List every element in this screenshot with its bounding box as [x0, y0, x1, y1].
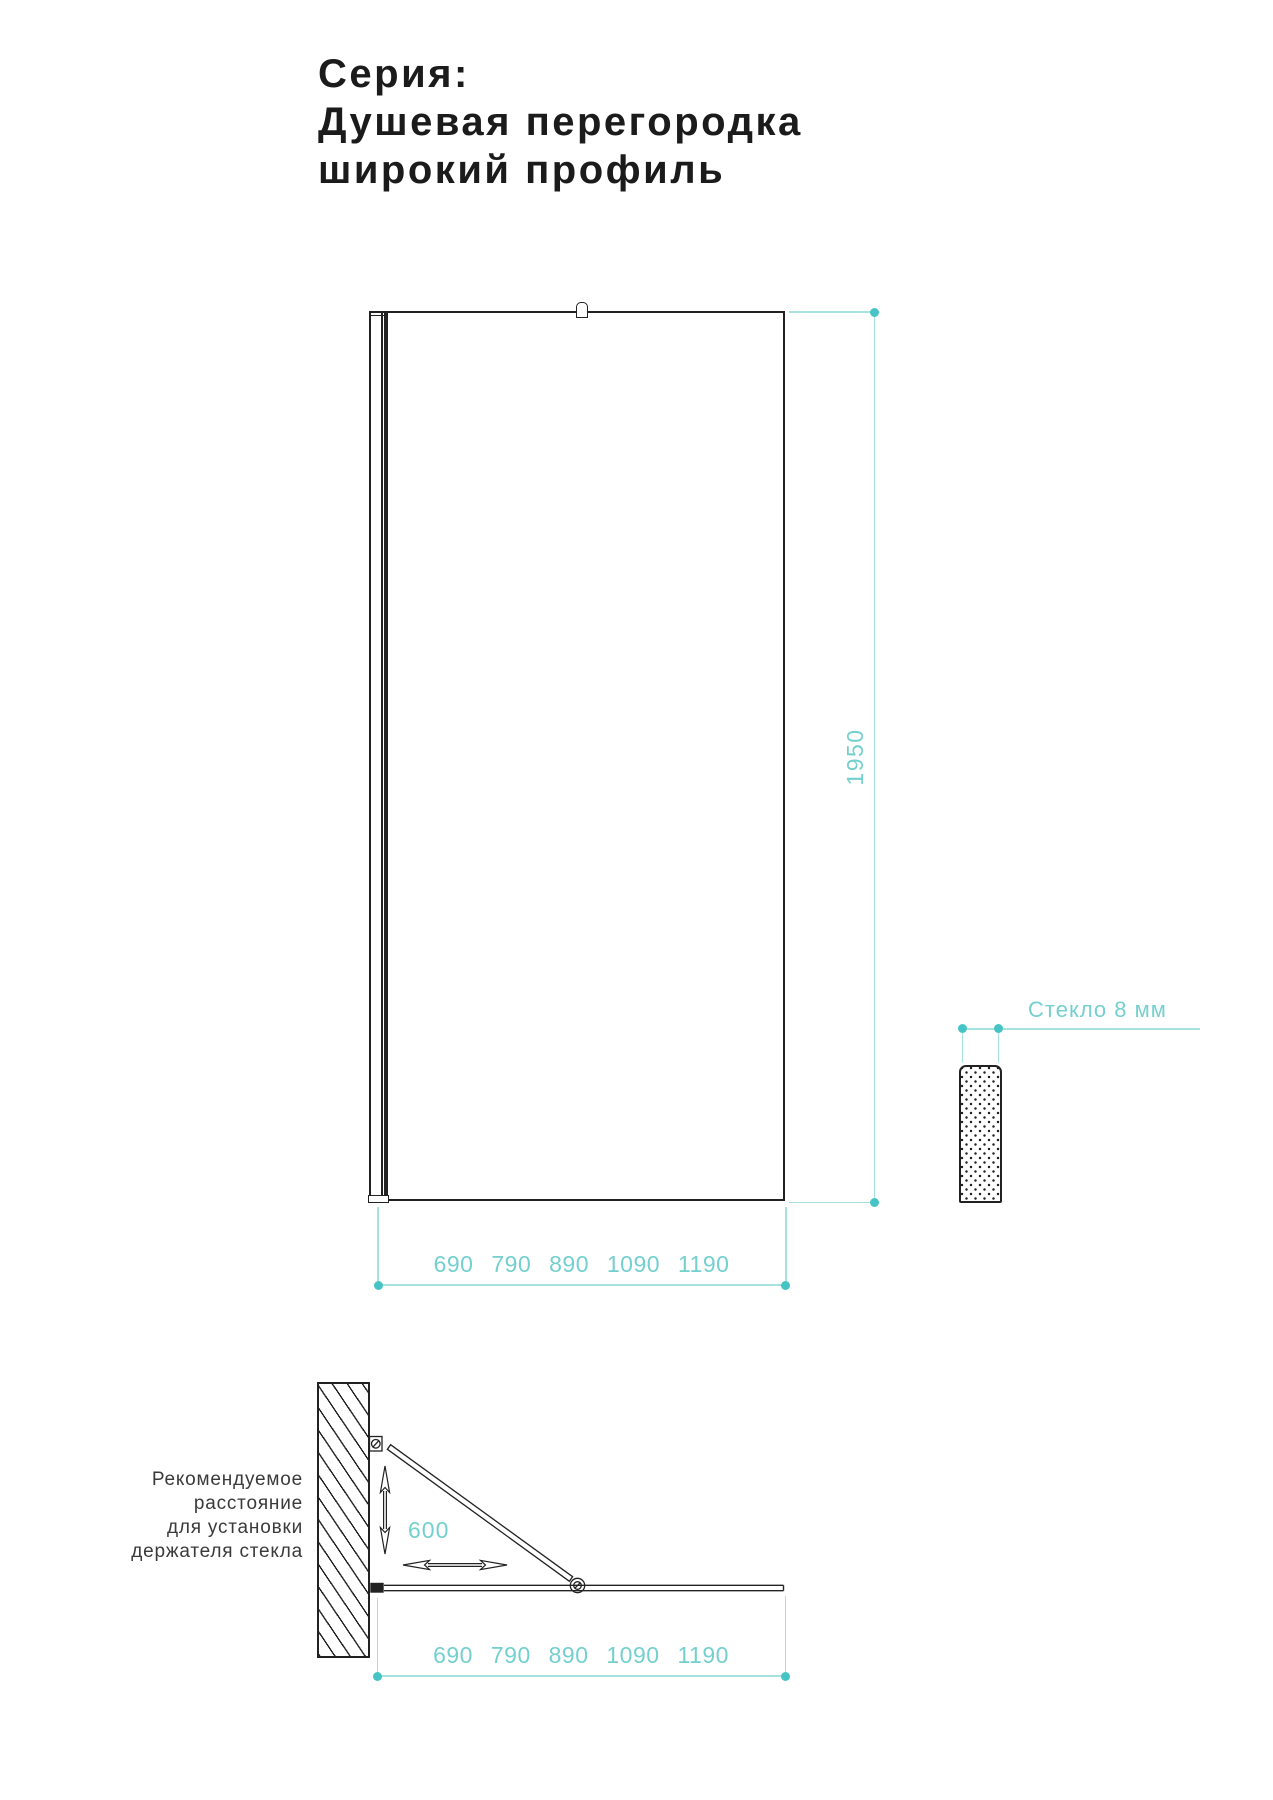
wall-profile-foot — [368, 1195, 389, 1203]
width-dim-line — [378, 1284, 785, 1286]
plan-width-dim-label: 690 790 890 1090 1190 — [377, 1642, 785, 1669]
wall-profile-top-cap — [370, 315, 385, 317]
thickness-ext-right — [998, 1033, 1000, 1063]
glass-plan-line — [371, 1584, 784, 1593]
width-dim-ext-right — [785, 1207, 787, 1285]
height-dim-label: 1950 — [842, 722, 868, 792]
glass-thickness-label: Стекло 8 мм — [1028, 997, 1167, 1023]
plan-width-dot-right — [781, 1672, 790, 1681]
width-dim-dot-left — [374, 1281, 383, 1290]
width-dim-label: 690 790 890 1090 1190 — [378, 1251, 785, 1278]
horizontal-range-arrow — [403, 1560, 507, 1569]
holder-caption: Рекомендуемое расстояние для установки д… — [60, 1468, 303, 1564]
height-dim-line — [874, 312, 876, 1202]
height-dim-dot-bottom — [870, 1198, 879, 1207]
glass-panel — [386, 311, 785, 1201]
wall-profile-inner-line — [381, 313, 383, 1199]
height-dim-ext-top — [789, 311, 874, 313]
glass-clamp-icon — [570, 1578, 584, 1592]
top-holder-bracket — [576, 302, 588, 318]
thickness-dot-left — [958, 1024, 967, 1033]
wall-profile — [369, 311, 386, 1202]
thickness-ext-left — [962, 1033, 964, 1063]
thickness-dot-right — [994, 1024, 1003, 1033]
holder-distance-label: 600 — [408, 1517, 449, 1544]
wall-hatched — [317, 1382, 370, 1658]
plan-width-dot-left — [373, 1672, 382, 1681]
support-bar — [387, 1445, 572, 1582]
page-title: Серия: Душевая перегородка широкий профи… — [318, 50, 918, 194]
wall-bracket-icon — [370, 1437, 383, 1452]
height-dim-dot-top — [870, 308, 879, 317]
glass-section-swatch — [959, 1065, 1002, 1203]
width-dim-dot-right — [781, 1281, 790, 1290]
vertical-range-arrow — [380, 1466, 389, 1554]
plan-width-dim-line — [377, 1675, 785, 1677]
height-dim-ext-bottom — [789, 1202, 874, 1204]
spec-sheet: Серия: Душевая перегородка широкий профи… — [0, 0, 1273, 1800]
